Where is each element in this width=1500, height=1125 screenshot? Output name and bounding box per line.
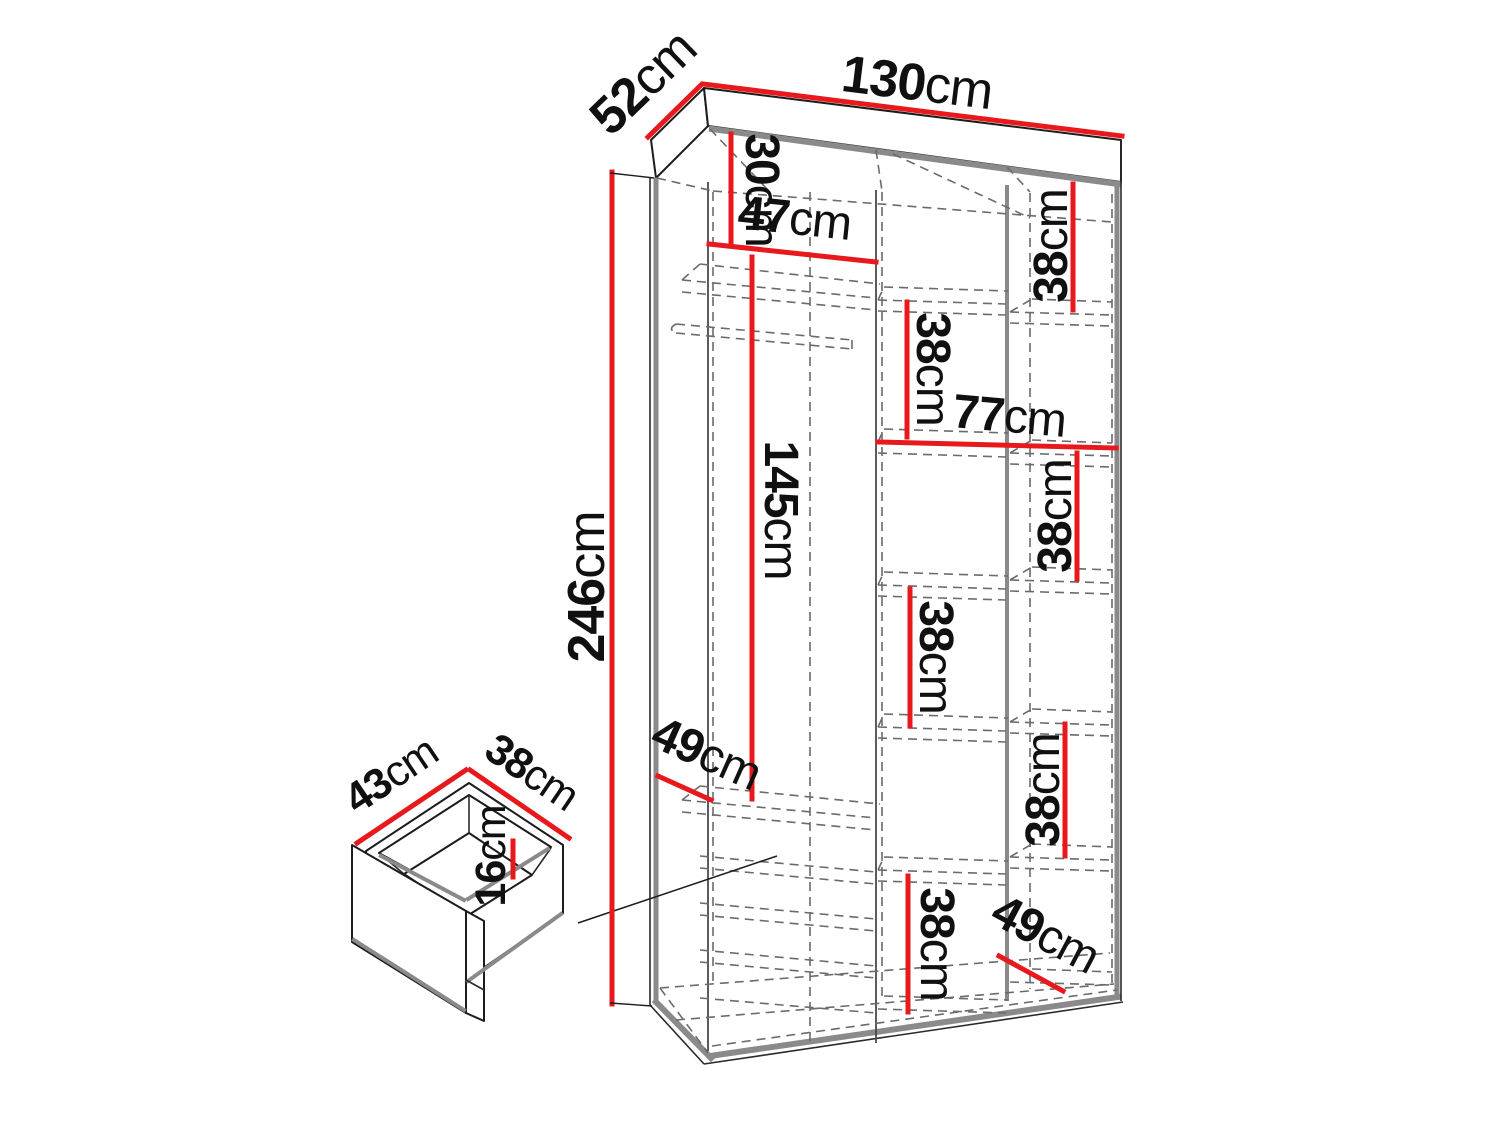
diagram-page: 52cm 130cm 246cm 30cm 47cm 145cm 49cm 38…: [0, 0, 1500, 1125]
dim-shelf-right-1-label: 38cm: [1025, 189, 1078, 302]
dim-drawer-height-label: 16cm: [467, 805, 515, 906]
dim-bottom-shelf-depth-label: 49cm: [983, 884, 1108, 984]
drawer-leader-line: [578, 856, 777, 923]
dim-shelf-mid-3-label: 38cm: [910, 887, 963, 1000]
dim-hanging-space-label: 145cm: [754, 440, 807, 579]
dim-height-label: 246cm: [558, 511, 616, 662]
dim-right-section-width-label: 77cm: [951, 385, 1069, 448]
wardrobe-dimension-diagram: 52cm 130cm 246cm 30cm 47cm 145cm 49cm 38…: [0, 0, 1500, 1125]
dim-shelf-right-2-label: 38cm: [1029, 459, 1082, 572]
left-column-shelves: [672, 264, 881, 1013]
drawer-detail: [352, 783, 563, 1021]
dim-shelf-mid-1-label: 38cm: [906, 312, 959, 425]
dim-shelf-right-3-label: 38cm: [1017, 733, 1070, 846]
dim-shelf-mid-2-label: 38cm: [909, 600, 962, 713]
